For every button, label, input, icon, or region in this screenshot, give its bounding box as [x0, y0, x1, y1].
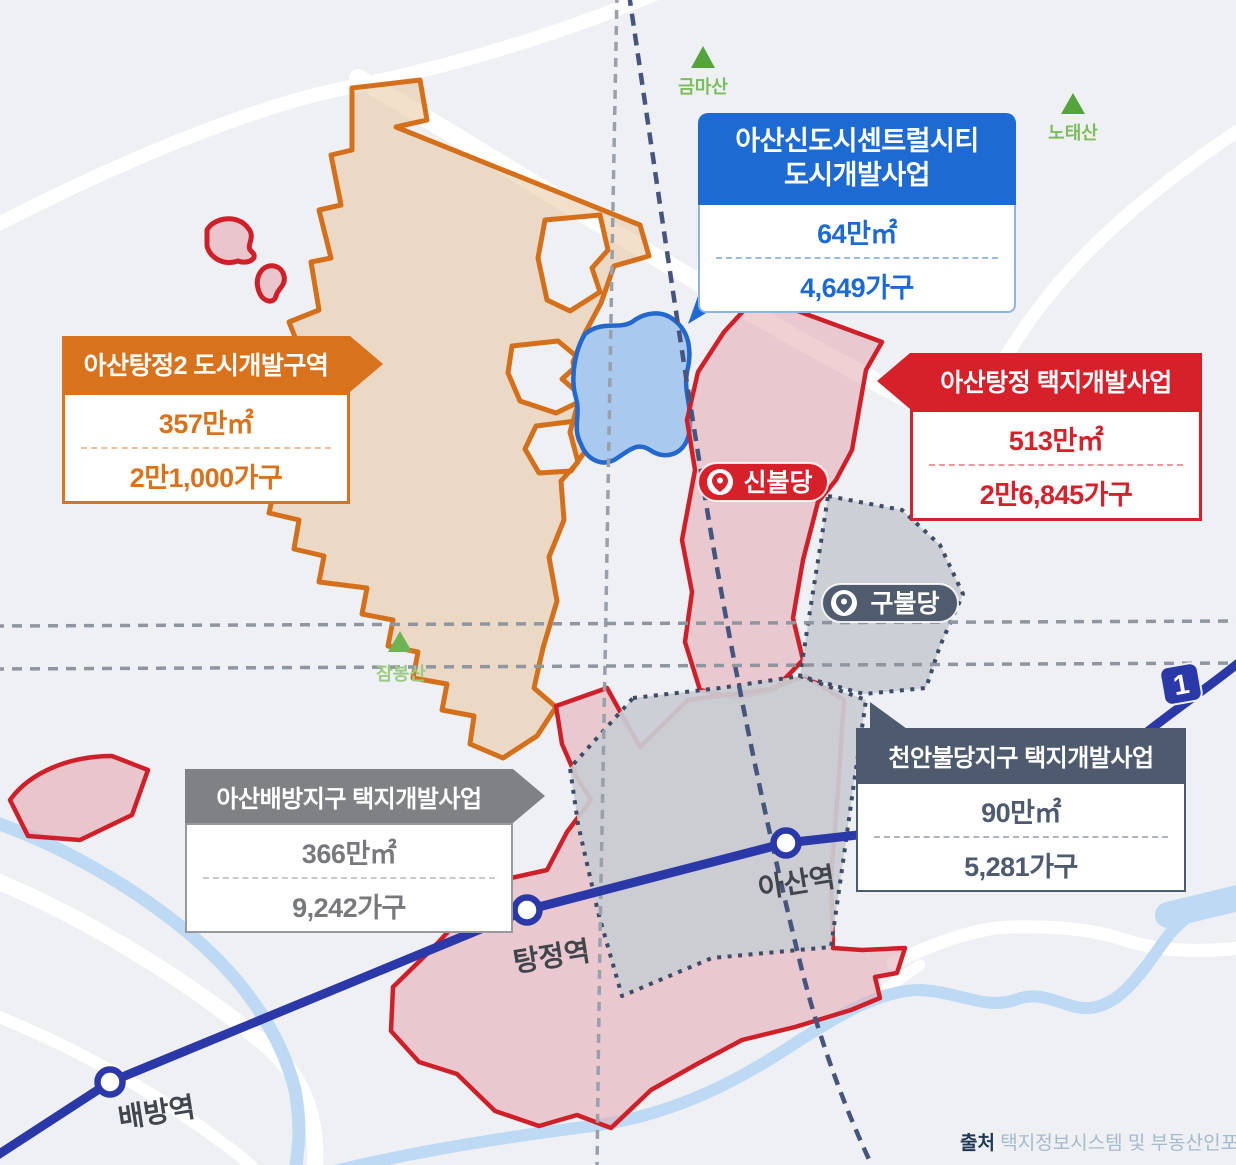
- callout-tangjeong: 아산탕정 택지개발사업 513만㎡ 2만6,845가구: [910, 353, 1202, 521]
- callout-body: 366만㎡ 9,242가구: [185, 823, 513, 933]
- callout-households: 9,242가구: [187, 879, 511, 931]
- station-marker-tangjeong: [515, 898, 540, 923]
- pin-icon-dot: [841, 599, 847, 605]
- divider: [874, 836, 1168, 838]
- callout-area: 513만㎡: [913, 412, 1199, 464]
- callout-tangjeong2: 아산탕정2 도시개발구역 357만㎡ 2만1,000가구: [62, 336, 350, 504]
- divider: [929, 464, 1183, 466]
- callout-body: 513만㎡ 2만6,845가구: [910, 409, 1202, 521]
- place-label-gubuldang: 구불당: [870, 590, 939, 618]
- callout-households: 2만1,000가구: [65, 449, 347, 501]
- divider: [81, 447, 331, 449]
- place-label-sinbuldang: 신불당: [743, 469, 812, 497]
- map-infographic: 1 배방역 탕정역 아산역 금마산 노태산 잠봉산 신불당 구불당 아산신도시센: [0, 0, 1236, 1165]
- callout-body: 90만㎡ 5,281가구: [856, 782, 1186, 892]
- callout-households: 2만6,845가구: [913, 466, 1199, 518]
- boundary-horizontal-dashed: [0, 663, 1236, 669]
- source-label: 출처: [960, 1133, 995, 1154]
- callout-area: 64만㎡: [700, 205, 1014, 257]
- place-badge-sinbuldang: 신불당: [698, 463, 828, 501]
- road: [893, 927, 1236, 963]
- region-newtown-centralcity: [573, 313, 690, 462]
- station-marker-baebang: [98, 1070, 123, 1095]
- mountain-label-notae: 노태산: [1048, 123, 1098, 143]
- callout-households: 5,281가구: [858, 838, 1184, 890]
- callout-title-text: 천안불당지구 택지개발사업: [888, 738, 1153, 773]
- callout-title-text: 아산배방지구 택지개발사업: [216, 779, 481, 814]
- station-label-baebang: 배방역: [116, 1091, 197, 1134]
- place-badge-gubuldang: 구불당: [822, 584, 958, 622]
- callout-title-line1: 아산신도시센트럴시티: [735, 125, 978, 159]
- callout-title: 아산탕정 택지개발사업: [910, 353, 1202, 409]
- callout-body: 357만㎡ 2만1,000가구: [62, 392, 350, 504]
- callout-area: 357만㎡: [65, 395, 347, 447]
- mountain-label-geumma: 금마산: [678, 77, 728, 97]
- callout-title: 아산신도시센트럴시티 도시개발사업: [698, 113, 1016, 205]
- source-text: 택지정보시스템 및 부동산인포: [1000, 1133, 1236, 1154]
- mountain-icon-geumma: [691, 46, 715, 68]
- stream: [1168, 897, 1236, 915]
- callout-cheonan-buldang: 천안불당지구 택지개발사업 90만㎡ 5,281가구: [856, 728, 1186, 892]
- callout-title: 천안불당지구 택지개발사업: [856, 728, 1186, 782]
- callout-households: 4,649가구: [700, 259, 1014, 311]
- boundary-horizontal-dashed: [0, 621, 1236, 626]
- region-left-wedge: [10, 756, 148, 840]
- mountain-label-jambong: 잠봉산: [376, 664, 426, 684]
- divider: [716, 257, 998, 259]
- callout-area: 90만㎡: [858, 784, 1184, 836]
- station-marker-asan: [774, 831, 799, 856]
- pin-icon-dot: [717, 478, 723, 484]
- region-small-parcel: [207, 219, 254, 263]
- callout-title: 아산탕정2 도시개발구역: [62, 336, 350, 392]
- callout-title-text: 아산탕정 택지개발사업: [940, 363, 1171, 399]
- source-credit: 출처 택지정보시스템 및 부동산인포: [960, 1128, 1236, 1155]
- callout-newtown-centralcity: 아산신도시센트럴시티 도시개발사업 64만㎡ 4,649가구: [698, 113, 1016, 313]
- callout-baebang: 아산배방지구 택지개발사업 366만㎡ 9,242가구: [185, 769, 513, 933]
- callout-title: 아산배방지구 택지개발사업: [185, 769, 513, 823]
- mountain-icon-notae: [1061, 93, 1085, 114]
- map-canvas: 1 배방역 탕정역 아산역 금마산 노태산 잠봉산 신불당 구불당: [0, 0, 1236, 1165]
- callout-area: 366만㎡: [187, 825, 511, 877]
- line1-badge: 1: [1159, 662, 1203, 706]
- region-small-parcel: [257, 266, 284, 301]
- callout-body: 64만㎡ 4,649가구: [698, 205, 1016, 313]
- divider: [203, 877, 495, 879]
- callout-title-line2: 도시개발사업: [784, 159, 930, 193]
- callout-title-text: 아산탕정2 도시개발구역: [84, 346, 329, 382]
